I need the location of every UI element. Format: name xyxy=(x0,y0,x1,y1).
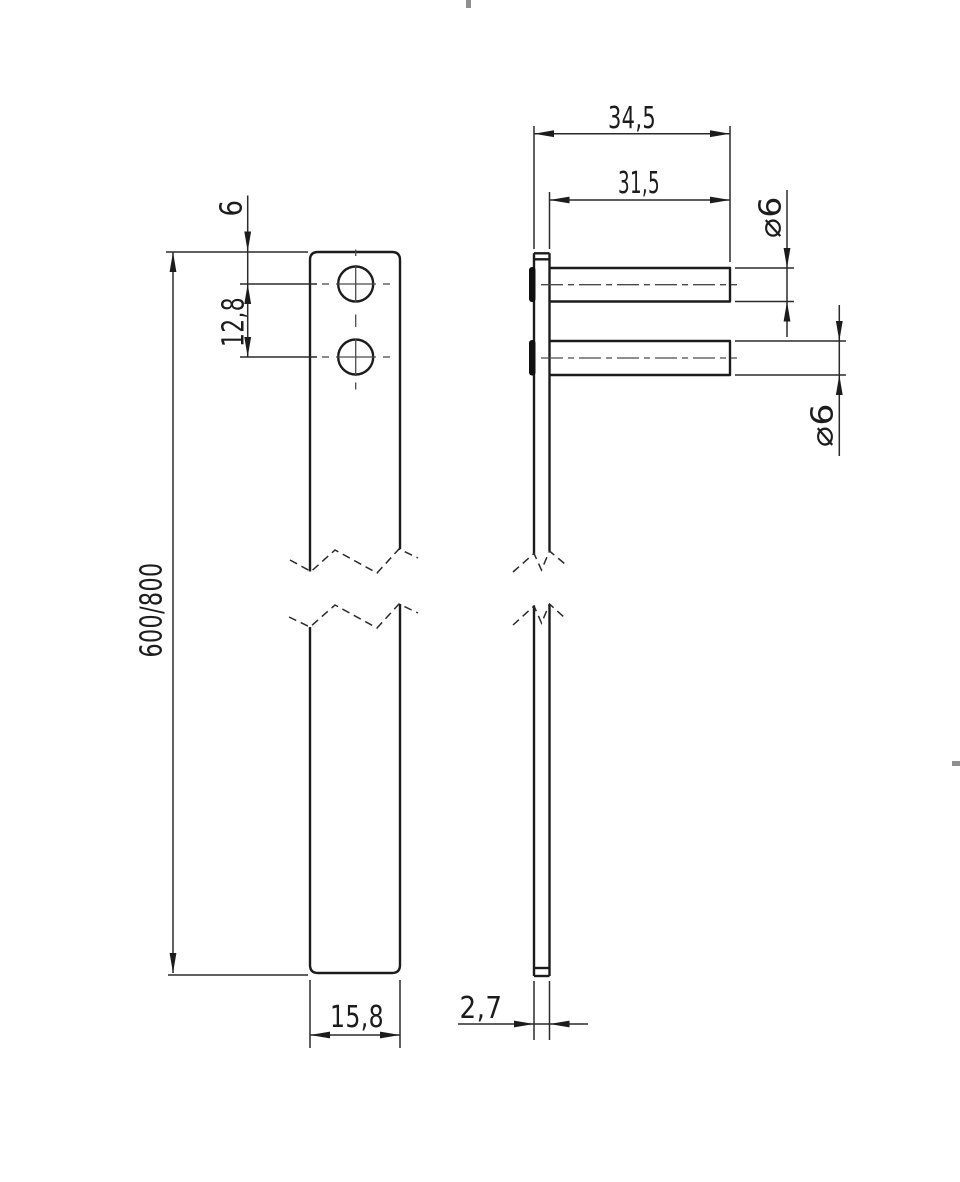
bar-lower-section xyxy=(310,604,400,973)
dim-part-length-label: 600/800 xyxy=(135,563,170,658)
dim-part-width: 15,8 xyxy=(310,980,400,1048)
dim-hole-spacing-label: 12,8 xyxy=(217,297,252,347)
dim-pin-dia-bottom-label: ⌀6 xyxy=(806,403,841,447)
pin-top-head xyxy=(529,267,536,302)
dim-part-thickness-label: 2,7 xyxy=(460,991,503,1026)
dim-hole-spacing: 12,8 xyxy=(217,284,318,357)
dim-pin-dia-top-label: ⌀6 xyxy=(754,196,789,238)
dim-pin-length: 31,5 xyxy=(550,166,731,249)
side-view xyxy=(513,253,737,976)
dim-pin-dia-top: ⌀6 xyxy=(735,190,794,337)
dim-part-width-label: 15,8 xyxy=(330,1000,384,1035)
sheet-frame-tick-top xyxy=(466,0,471,8)
front-break-lower xyxy=(289,604,418,628)
hole-top-centermark xyxy=(322,250,390,303)
dim-part-thickness: 2,7 xyxy=(458,981,588,1040)
sheet-frame-tick-right xyxy=(952,761,960,766)
drawing-sheet: 600/800 6 12,8 15,8 2,7 3 xyxy=(0,0,960,1182)
dim-pin-length-label: 31,5 xyxy=(618,166,660,201)
technical-drawing: 600/800 6 12,8 15,8 2,7 3 xyxy=(0,0,960,1182)
front-view xyxy=(289,250,418,974)
dim-pin-dia-bottom: ⌀6 xyxy=(735,305,846,456)
side-break-upper xyxy=(513,551,565,572)
pin-bottom-head xyxy=(529,340,536,376)
dim-edge-to-hole-label: 6 xyxy=(215,200,250,217)
bar-upper-section xyxy=(310,252,400,572)
dim-part-length: 600/800 xyxy=(135,252,309,975)
side-break-lower xyxy=(513,604,565,625)
dim-pin-overall-label: 34,5 xyxy=(608,101,656,136)
hole-bottom-centermark xyxy=(322,315,390,390)
